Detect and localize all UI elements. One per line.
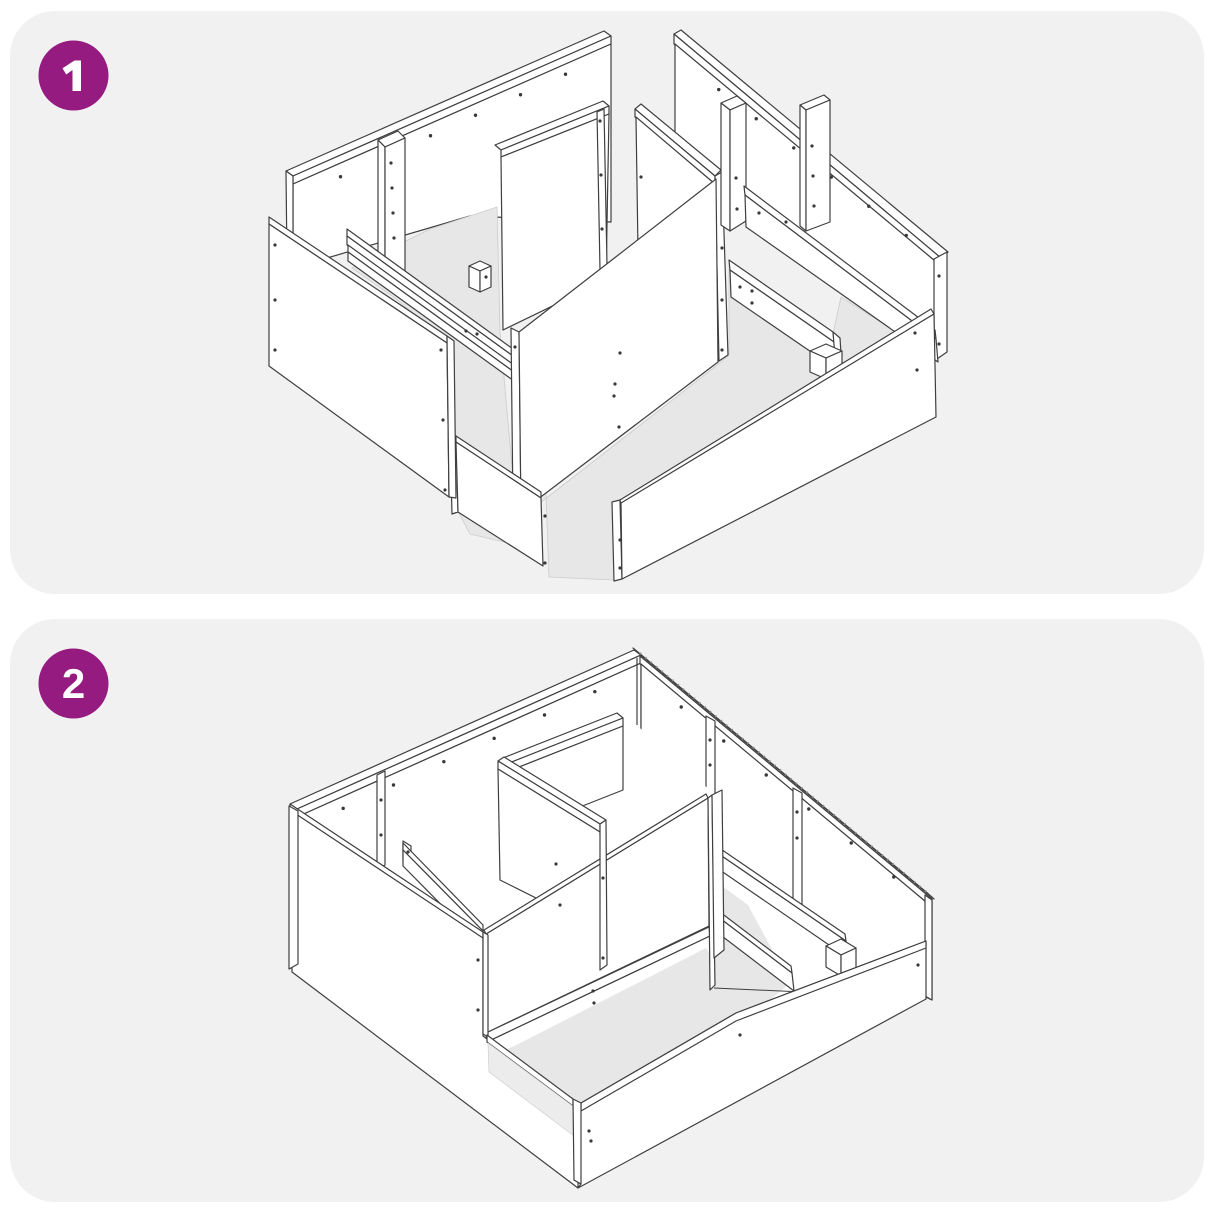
svg-text:2: 2 — [62, 660, 85, 707]
